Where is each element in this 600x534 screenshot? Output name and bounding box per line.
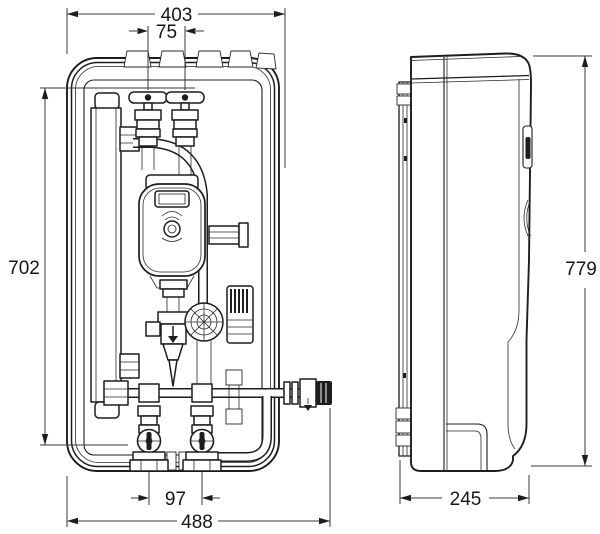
dim-label-overall-height: 779 bbox=[565, 259, 597, 280]
dim-label-overall-width-with-valve: 488 bbox=[181, 512, 213, 533]
dim-label-mounting-height: 702 bbox=[8, 258, 40, 279]
pump-display bbox=[155, 191, 189, 207]
drawing-canvas: 403 75 702 97 488 bbox=[0, 0, 600, 534]
dim-arrow-icon bbox=[582, 455, 588, 466]
pipe-union bbox=[104, 381, 128, 405]
flow-down-arrow-icon bbox=[304, 405, 312, 411]
cover-latch bbox=[523, 126, 532, 168]
circulation-pump bbox=[139, 175, 205, 288]
dim-label-top-spacing: 75 bbox=[156, 22, 177, 43]
knurled-cap bbox=[316, 381, 332, 405]
dim-arrow-icon bbox=[518, 495, 529, 501]
dim-arrow-icon bbox=[67, 518, 78, 524]
dimension-bottom-connection-spacing: 97 bbox=[131, 472, 220, 510]
dim-arrow-icon bbox=[138, 28, 149, 34]
wall-bracket bbox=[396, 82, 412, 456]
dimension-drawing: 403 75 702 97 488 bbox=[0, 0, 600, 534]
return-elbow-pipe bbox=[216, 396, 267, 457]
pump-side-port bbox=[209, 223, 248, 247]
dim-arrow-icon bbox=[42, 434, 48, 445]
dim-arrow-icon bbox=[319, 518, 330, 524]
left-manifold bbox=[91, 93, 139, 418]
side-view bbox=[396, 53, 532, 471]
manifold-union-bottom bbox=[120, 354, 139, 378]
tee-union-right bbox=[192, 384, 212, 402]
check-valve bbox=[146, 280, 189, 386]
enclosure-side bbox=[411, 53, 531, 471]
valve-actuator bbox=[227, 286, 253, 343]
top-knockout-tabs bbox=[124, 51, 276, 69]
bottom-valve-left bbox=[130, 406, 168, 471]
tee-union-left bbox=[139, 384, 159, 402]
dim-arrow-icon bbox=[139, 495, 150, 501]
check-valve-side-cap bbox=[146, 322, 160, 336]
dimension-overall-height: 779 bbox=[531, 56, 600, 466]
dim-label-bottom-spacing: 97 bbox=[165, 489, 186, 510]
dim-arrow-icon bbox=[400, 495, 411, 501]
dim-arrow-icon bbox=[582, 56, 588, 67]
dim-arrow-icon bbox=[67, 11, 78, 17]
dim-arrow-icon bbox=[274, 11, 285, 17]
dim-arrow-icon bbox=[42, 88, 48, 99]
dim-label-overall-depth: 245 bbox=[450, 489, 482, 510]
mixing-valve bbox=[185, 303, 223, 388]
dim-arrow-icon bbox=[185, 28, 196, 34]
front-view bbox=[67, 51, 332, 471]
bottom-valve-right bbox=[183, 406, 221, 471]
dim-arrow-icon bbox=[202, 495, 213, 501]
